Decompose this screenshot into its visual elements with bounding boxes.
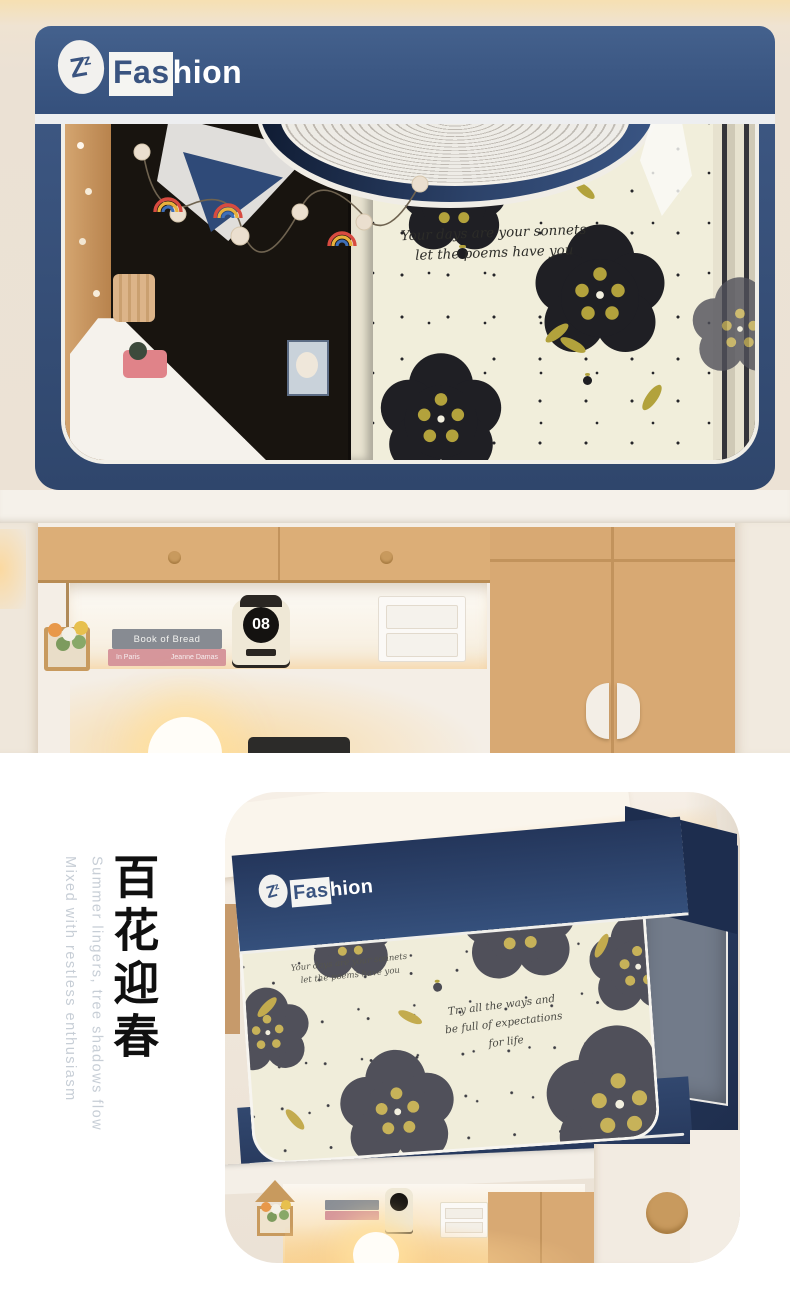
card-bear-illustration [296, 352, 318, 378]
headline-vertical-cn: 百花迎春 [108, 853, 156, 1093]
rainbow-charm [329, 233, 355, 246]
flip-clock: 08 [232, 599, 290, 665]
leaf-graphic [283, 1107, 307, 1132]
mini-book-top [325, 1200, 379, 1210]
toy-telephone [123, 350, 167, 378]
warm-wall-lamp-glow [0, 529, 26, 609]
brand-monogram: Zz [54, 36, 109, 97]
canopy-interior: Your days are your sonnets let the poems… [61, 124, 759, 464]
photo-right-wall [690, 1130, 740, 1263]
fairy-lights [77, 142, 84, 149]
bed-base-board [0, 490, 790, 523]
book-bottom: In Paris Jeanne Damas [108, 649, 226, 666]
tagline-vertical-en: Summer lingers, tree shadows flow Mixed … [55, 856, 110, 1306]
drawer-organizer [378, 596, 466, 662]
basket-flowers [48, 623, 62, 637]
brand-wordmark: Fashion [290, 876, 374, 903]
mini-book-bottom [325, 1211, 379, 1220]
shelf-niche: Book of Bread In Paris Jeanne Damas 08 [70, 583, 487, 669]
book-top-title: Book of Bread [134, 634, 201, 645]
flower-graphic [237, 981, 319, 1083]
organizer-drawer [386, 605, 458, 629]
cotton-ball-lights [134, 144, 428, 245]
book-bottom-title: In Paris [116, 654, 140, 661]
book-top: Book of Bread [112, 629, 222, 649]
tagline-en-line2: Mixed with restless enthusiasm [58, 856, 81, 1306]
brand-logo: Zz Fashion [257, 866, 374, 909]
flip-clock-label [246, 649, 276, 656]
mini-books [325, 1200, 379, 1220]
cabinet-knob [380, 551, 393, 564]
rainbow-charm [155, 199, 181, 212]
flower-graphic [373, 349, 511, 460]
garland-string-lights [120, 142, 455, 337]
wardrobe-vertical-seam [611, 527, 614, 753]
planter-roof [255, 1180, 295, 1202]
headline-cn-text: 百花迎春 [107, 853, 158, 1065]
flower-graphic [327, 1041, 468, 1166]
cabinet-knob [168, 551, 181, 564]
wardrobe-handle-left [586, 683, 609, 739]
brand-monogram: Zz [255, 871, 291, 911]
bottom-product-photo: Happy Life Your days are your sonnets le… [225, 792, 740, 1263]
side-panel-cream [594, 1144, 690, 1263]
basket-hook [66, 583, 69, 627]
mini-organizer-drawer [445, 1208, 483, 1219]
rainbow-charm [215, 205, 241, 218]
tagline-en-line1: Summer lingers, tree shadows flow [84, 856, 107, 1306]
flower-graphic [327, 1041, 468, 1166]
wooden-toy [113, 274, 155, 322]
desk-glow-small [285, 1222, 585, 1263]
top-product-photo: Zz Fashion [0, 0, 790, 753]
wardrobe-doors [490, 527, 735, 753]
canopy-frame: Your days are your sonnets let the poems… [35, 124, 775, 490]
pinned-photo-card [287, 340, 329, 396]
flower-graphic [237, 981, 319, 1083]
leaf-graphic [639, 382, 665, 413]
flower-graphic [373, 349, 511, 460]
flower-graphic [685, 274, 759, 384]
cabinet-seam [278, 527, 280, 580]
desk-glow-area [70, 669, 487, 753]
mini-clock-dial [390, 1193, 408, 1211]
toy-telephone-dial [129, 342, 147, 360]
ball-lamp [148, 717, 222, 753]
brand-wordmark: Fashion [109, 56, 242, 88]
flip-clock-digits: 08 [252, 616, 270, 634]
leaf-graphic [396, 1007, 423, 1026]
berry-graphic [433, 982, 443, 992]
flower-graphic [685, 274, 759, 384]
laptop [248, 737, 350, 753]
garland-string [142, 144, 422, 252]
white-piping-strip [35, 114, 775, 124]
upper-cabinet-doors [38, 527, 490, 583]
planter-flowers [261, 1202, 271, 1212]
berry-graphic [583, 376, 592, 385]
under-bed-furniture: Book of Bread In Paris Jeanne Damas 08 [0, 523, 790, 753]
round-wood-knob [646, 1192, 688, 1234]
flip-clock-dial: 08 [243, 607, 279, 643]
right-wall [735, 523, 790, 753]
brand-logo: Zz Fashion [58, 40, 242, 94]
organizer-drawer [386, 633, 458, 657]
book-bottom-author: Jeanne Damas [171, 654, 218, 661]
product-detail-page: Zz Fashion [0, 0, 790, 1307]
flip-clock-cap [240, 595, 282, 607]
wardrobe-handle-right [617, 683, 640, 739]
